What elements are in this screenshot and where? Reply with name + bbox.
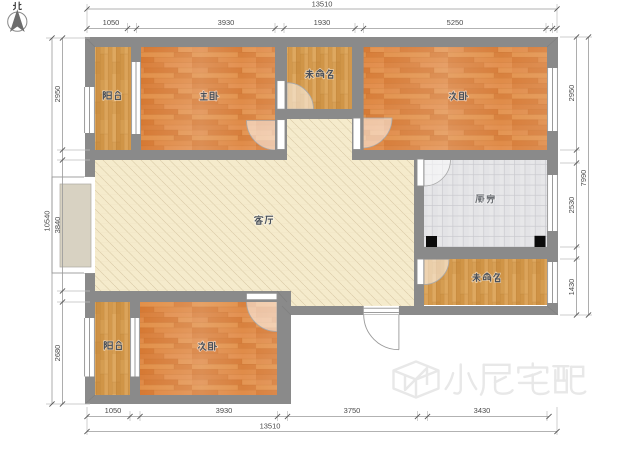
svg-text:3430: 3430 [474,406,491,415]
svg-text:1050: 1050 [105,406,122,415]
svg-text:13510: 13510 [312,0,333,9]
svg-text:13510: 13510 [260,422,281,431]
svg-text:3930: 3930 [218,18,235,27]
svg-text:3840: 3840 [53,217,62,234]
svg-text:5250: 5250 [447,18,464,27]
svg-text:7990: 7990 [579,170,588,187]
svg-text:2680: 2680 [53,345,62,362]
svg-text:10540: 10540 [43,211,52,232]
svg-text:2950: 2950 [567,85,576,102]
svg-text:1050: 1050 [103,18,120,27]
svg-text:3930: 3930 [216,406,233,415]
svg-text:2950: 2950 [53,86,62,103]
svg-text:3750: 3750 [344,406,361,415]
svg-text:2530: 2530 [567,197,576,214]
svg-text:1430: 1430 [567,279,576,296]
svg-text:1930: 1930 [314,18,331,27]
